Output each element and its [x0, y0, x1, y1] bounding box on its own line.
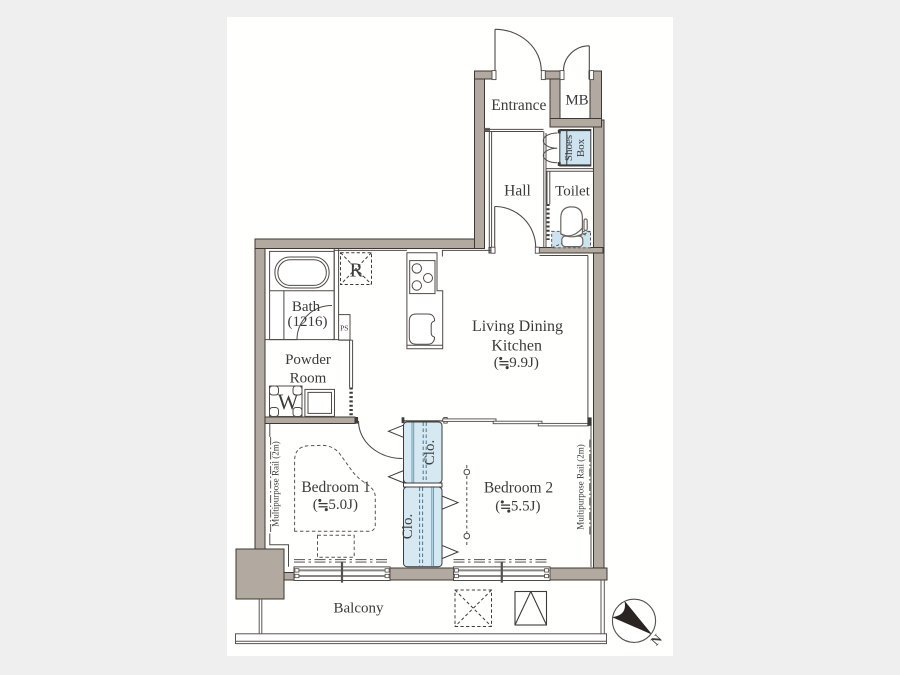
svg-text:(: (: [494, 355, 499, 371]
svg-text:Kitchen: Kitchen: [491, 338, 542, 355]
svg-text:Bedroom 2: Bedroom 2: [484, 480, 553, 497]
svg-text:(: (: [313, 497, 318, 513]
svg-text:W: W: [278, 389, 299, 414]
svg-text:R: R: [350, 259, 364, 281]
svg-text:Shoes: Shoes: [563, 135, 575, 161]
svg-text:Multipurpose Rail (2m): Multipurpose Rail (2m): [271, 441, 281, 527]
svg-text:Toilet: Toilet: [555, 184, 591, 200]
svg-text:Clo.: Clo.: [400, 514, 416, 539]
svg-text:Bath: Bath: [292, 299, 321, 315]
svg-text:Entrance: Entrance: [491, 97, 546, 114]
svg-text:5.0J): 5.0J): [328, 497, 358, 513]
svg-text:Multipurpose Rail (2m): Multipurpose Rail (2m): [576, 444, 586, 530]
svg-text:Powder: Powder: [285, 352, 331, 368]
svg-text:Balcony: Balcony: [334, 601, 384, 617]
svg-text:Box: Box: [575, 138, 587, 157]
svg-text:9.9J): 9.9J): [509, 355, 539, 371]
svg-text:(: (: [495, 499, 500, 515]
svg-text:Hall: Hall: [504, 183, 531, 200]
svg-text:PS: PS: [340, 324, 348, 333]
svg-text:Room: Room: [290, 371, 327, 387]
svg-text:MB: MB: [565, 93, 588, 109]
svg-text:(1216): (1216): [288, 314, 328, 330]
svg-text:Clo.: Clo.: [422, 440, 438, 465]
svg-text:Living Dining: Living Dining: [472, 318, 563, 335]
svg-text:Bedroom 1: Bedroom 1: [301, 479, 370, 496]
svg-text:5.5J): 5.5J): [511, 499, 541, 515]
